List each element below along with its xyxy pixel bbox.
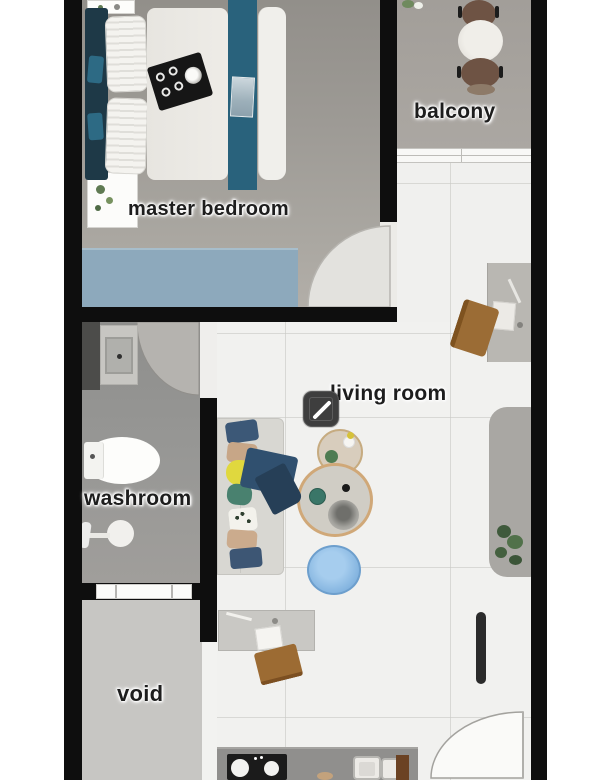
chair-armrest [495, 6, 499, 18]
table-plant [325, 450, 338, 463]
floor-pouf [307, 545, 361, 595]
sofa-pillow [229, 547, 263, 570]
table-bowl [328, 500, 359, 530]
plant-decor [95, 205, 101, 211]
wall-left-outer [64, 0, 82, 780]
chair-base [467, 84, 495, 95]
chair-armrest [458, 6, 462, 18]
toilet-tank [84, 442, 104, 479]
desk-decor [517, 322, 523, 328]
shower-head [107, 520, 134, 547]
tile-line [397, 183, 531, 184]
cutting-board [396, 755, 409, 780]
wall-tv [476, 612, 486, 684]
cabinet-plant [509, 555, 522, 565]
edit-pencil-icon[interactable] [303, 391, 339, 427]
room-label-balcony: balcony [414, 100, 495, 124]
tile-line [450, 163, 451, 780]
vanity-cabinet [82, 322, 100, 390]
balcony-plant [414, 2, 423, 9]
accent-pillow [87, 55, 104, 83]
wall-bedroom-bottom [64, 307, 397, 322]
wall-right-outer [531, 0, 547, 780]
sofa-pillow [225, 419, 260, 444]
bedroom-door-swing [306, 223, 392, 308]
cooktop-knob [254, 757, 257, 760]
wall-bedroom-living-divider [380, 0, 397, 222]
desk-decor [272, 618, 278, 624]
cooktop [227, 754, 287, 780]
cabinet-plant [495, 547, 507, 558]
tray-bowl [183, 65, 204, 86]
window-frame-line [397, 155, 531, 156]
room-label-void: void [117, 681, 163, 707]
plant-decor [96, 185, 105, 194]
washroom-door-swing [135, 320, 201, 397]
tile-line [285, 322, 286, 780]
bed-pillow [105, 15, 149, 92]
tray-cup [168, 65, 179, 76]
void-door-opening [200, 642, 217, 780]
pencil-slash-glyph [304, 392, 340, 428]
table-vase [309, 488, 326, 505]
room-label-master-bedroom: master bedroom [128, 198, 289, 221]
tray-cup [155, 71, 166, 82]
coffee-table-large [297, 463, 373, 537]
table-decor [347, 432, 354, 439]
table-decor [342, 484, 350, 492]
bed-pillow [105, 97, 149, 174]
bedroom-blue-rug [82, 248, 298, 307]
window-frame-line [171, 585, 173, 598]
floor-plan-canvas: master bedroom balcony living room washr… [0, 0, 616, 780]
accent-pillow [87, 113, 104, 141]
sideboard-cabinet [489, 407, 533, 577]
magazine-on-bed [230, 76, 255, 117]
wall-washroom-living-divider [200, 398, 217, 642]
chair-armrest [499, 66, 503, 78]
cooking-pot [231, 759, 249, 777]
cabinet-plant [507, 535, 523, 549]
window-frame-divider [461, 149, 462, 162]
washroom-void-window [96, 584, 192, 599]
chair-armrest [457, 66, 461, 78]
entrance-door-swing [429, 710, 531, 780]
kitchen-sink [353, 756, 381, 780]
sink-basin [359, 762, 375, 776]
balcony-table [458, 20, 503, 62]
room-label-living-room: living room [330, 382, 446, 406]
kitchen-item [317, 772, 333, 780]
bed-footboard-bench [258, 7, 286, 180]
washroom-door-opening [200, 322, 217, 398]
window-frame-line [115, 585, 117, 598]
cooktop-knob [260, 756, 263, 759]
cooking-pot [264, 761, 279, 776]
decor-item [114, 4, 120, 10]
tray-cup [160, 86, 171, 97]
balcony-plant [402, 0, 414, 8]
sink-drain [117, 354, 122, 359]
plant-decor [106, 197, 113, 204]
room-label-washroom: washroom [84, 487, 191, 511]
toilet-flush-button [90, 454, 95, 459]
balcony-sliding-window [397, 148, 531, 163]
tray-cup [173, 80, 184, 91]
